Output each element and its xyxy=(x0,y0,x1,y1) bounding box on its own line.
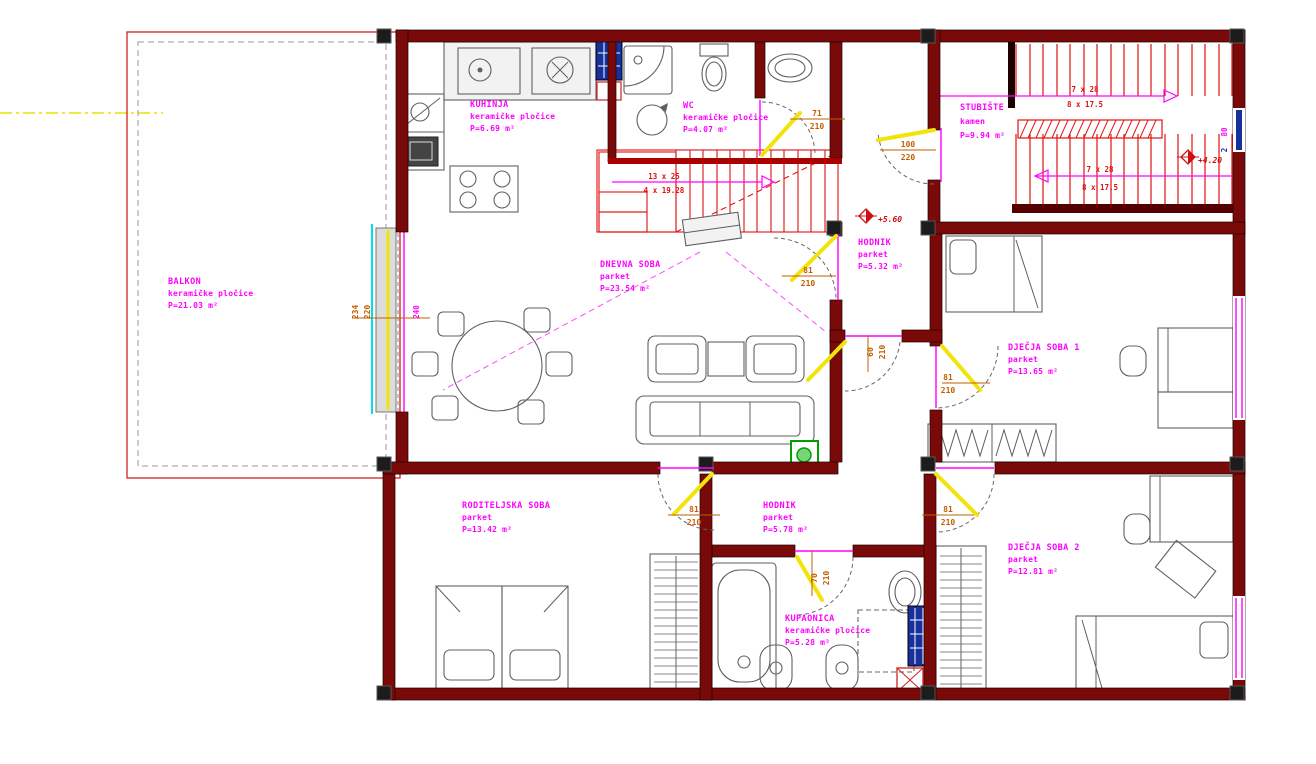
svg-text:parket: parket xyxy=(858,250,888,259)
svg-text:DJEČJA SOBA 2: DJEČJA SOBA 2 xyxy=(1008,541,1080,553)
room-label-kuhinja: KUHINJA keramičke pločice P=6.69 m² xyxy=(470,100,555,133)
door-stairwell: 100 220 xyxy=(878,128,941,184)
door-size: 81 xyxy=(689,505,699,514)
window-size: 220 xyxy=(363,305,372,320)
stair-window xyxy=(1236,110,1242,150)
door-size: 210 xyxy=(801,279,816,288)
door-child1: 81 210 xyxy=(936,346,998,408)
right-window-label-2: 2 xyxy=(1220,148,1229,153)
svg-text:P=23.54 m²: P=23.54 m² xyxy=(600,284,650,293)
desk xyxy=(1150,476,1233,542)
desk xyxy=(1158,328,1233,392)
svg-text:parket: parket xyxy=(763,513,793,522)
room-label-hodnik-1: HODNIK parket P=5.32 m² xyxy=(858,238,903,271)
door-size: 210 xyxy=(822,571,831,586)
dining-table xyxy=(412,308,572,424)
sight-line xyxy=(726,252,826,332)
interior-stair-label-1: 13 x 25 xyxy=(648,172,680,181)
svg-text:2: 2 xyxy=(1220,148,1229,153)
room-label-dnevna: DNEVNA SOBA parket P=23.54 m² xyxy=(600,260,661,293)
sofa-set xyxy=(636,336,814,444)
svg-text:P=5.78 m²: P=5.78 m² xyxy=(763,525,808,534)
svg-text:parket: parket xyxy=(462,513,492,522)
svg-text:P=21.03 m²: P=21.03 m² xyxy=(168,301,218,310)
right-window-label: 80 xyxy=(1220,127,1229,137)
shower-icon xyxy=(624,46,672,94)
door-size: 100 xyxy=(901,140,916,149)
door-size: 210 xyxy=(941,386,956,395)
coffee-table xyxy=(708,342,744,376)
balcony-sill-label: 240 xyxy=(412,305,421,319)
door-size: 220 xyxy=(901,153,916,162)
svg-text:P=6.69 m²: P=6.69 m² xyxy=(470,124,515,133)
sofa xyxy=(636,396,814,444)
room-label-hodnik-2: HODNIK parket P=5.78 m² xyxy=(763,501,808,534)
svg-text:P=5.28 m²: P=5.28 m² xyxy=(785,638,830,647)
chair xyxy=(1124,514,1150,544)
door-size: 60 xyxy=(866,347,875,357)
stair-bottom-label-2: 8 x 17.5 xyxy=(1082,183,1118,192)
svg-text:HODNIK: HODNIK xyxy=(763,501,797,511)
door-hall-south: 60 210 xyxy=(808,336,902,391)
door-size: 71 xyxy=(812,109,822,118)
svg-text:80: 80 xyxy=(1220,127,1229,137)
svg-text:kamen: kamen xyxy=(960,117,985,126)
floor-plan-page: 13 x 25 4 x 19.28 xyxy=(0,0,1316,764)
svg-text:keramičke pločice: keramičke pločice xyxy=(683,112,768,122)
room-label-djecja-1: DJEČJA SOBA 1 parket P=13.65 m² xyxy=(1008,341,1080,376)
lounge-chair xyxy=(1155,540,1215,598)
chair xyxy=(1120,346,1146,376)
shower-cabin xyxy=(858,610,914,672)
stair-top-label-1: 7 x 28 xyxy=(1071,85,1099,94)
child2-furniture xyxy=(936,476,1234,696)
floor-plan-canvas: 13 x 25 4 x 19.28 xyxy=(0,0,1316,764)
svg-text:P=5.32 m²: P=5.32 m² xyxy=(858,262,903,271)
door-size: 81 xyxy=(943,505,953,514)
svg-text:keramičke pločice: keramičke pločice xyxy=(470,111,555,121)
svg-text:BALKON: BALKON xyxy=(168,277,201,287)
parents-furniture xyxy=(436,554,702,696)
boiler-icon xyxy=(637,105,667,135)
svg-text:DNEVNA SOBA: DNEVNA SOBA xyxy=(600,260,661,270)
door-size: 210 xyxy=(878,345,887,360)
svg-text:KUHINJA: KUHINJA xyxy=(470,100,509,110)
svg-text:RODITELJSKA SOBA: RODITELJSKA SOBA xyxy=(462,501,550,511)
room-label-djecja-2: DJEČJA SOBA 2 parket P=12.81 m² xyxy=(1008,541,1080,576)
window-size: 234 xyxy=(351,305,360,320)
tv xyxy=(682,212,741,246)
room-label-balkon: BALKON keramičke pločice P=21.03 m² xyxy=(168,277,253,310)
door-bathroom: 70 210 xyxy=(795,551,853,615)
svg-text:parket: parket xyxy=(600,272,630,281)
svg-text:WC: WC xyxy=(683,101,694,111)
svg-text:HODNIK: HODNIK xyxy=(858,238,892,248)
room-label-wc: WC keramičke pločice P=4.07 m² xyxy=(683,101,768,134)
level-text: +5.60 xyxy=(878,215,902,224)
svg-text:240: 240 xyxy=(412,305,421,319)
room-label-stubiste: STUBIŠTE kamen P=9.94 m² xyxy=(960,101,1005,140)
level-marker-stair: +4.20 xyxy=(1177,150,1222,165)
dishwasher-icon xyxy=(404,137,438,166)
svg-text:STUBIŠTE: STUBIŠTE xyxy=(960,101,1004,113)
door-living-hall: 81 210 xyxy=(774,234,838,300)
door-size: 210 xyxy=(687,518,702,527)
stair-bottom-label-1: 7 x 28 xyxy=(1086,165,1114,174)
svg-text:P=4.07 m²: P=4.07 m² xyxy=(683,125,728,134)
level-text: +4.20 xyxy=(1198,156,1222,165)
bidet-icon xyxy=(826,645,858,691)
toilet-icon xyxy=(700,44,728,56)
room-label-roditeljska: RODITELJSKA SOBA parket P=13.42 m² xyxy=(462,501,550,534)
svg-text:keramičke pločice: keramičke pločice xyxy=(168,288,253,298)
child1-furniture xyxy=(928,236,1233,462)
svg-text:P=9.94 m²: P=9.94 m² xyxy=(960,131,1005,140)
balcony-window-label: 234 220 xyxy=(351,305,372,320)
door-size: 210 xyxy=(810,122,825,131)
door-size: 210 xyxy=(941,518,956,527)
svg-text:keramičke pločice: keramičke pločice xyxy=(785,625,870,635)
door-size: 81 xyxy=(803,266,813,275)
svg-text:P=12.81 m²: P=12.81 m² xyxy=(1008,567,1058,576)
svg-text:P=13.42 m²: P=13.42 m² xyxy=(462,525,512,534)
balcony xyxy=(127,32,400,478)
stair-top-label-2: 8 x 17.5 xyxy=(1067,100,1103,109)
level-marker-landing: +5.60 xyxy=(855,209,902,224)
interior-stair-label-2: 4 x 19.28 xyxy=(644,186,685,195)
svg-text:P=13.65 m²: P=13.65 m² xyxy=(1008,367,1058,376)
svg-text:DJEČJA SOBA 1: DJEČJA SOBA 1 xyxy=(1008,341,1080,353)
svg-text:KUPAONICA: KUPAONICA xyxy=(785,614,835,624)
svg-text:parket: parket xyxy=(1008,555,1038,564)
bathtub-icon xyxy=(712,563,776,695)
door-size: 81 xyxy=(943,373,953,382)
door-size: 70 xyxy=(810,573,819,583)
dresser xyxy=(1158,392,1233,428)
svg-text:parket: parket xyxy=(1008,355,1038,364)
